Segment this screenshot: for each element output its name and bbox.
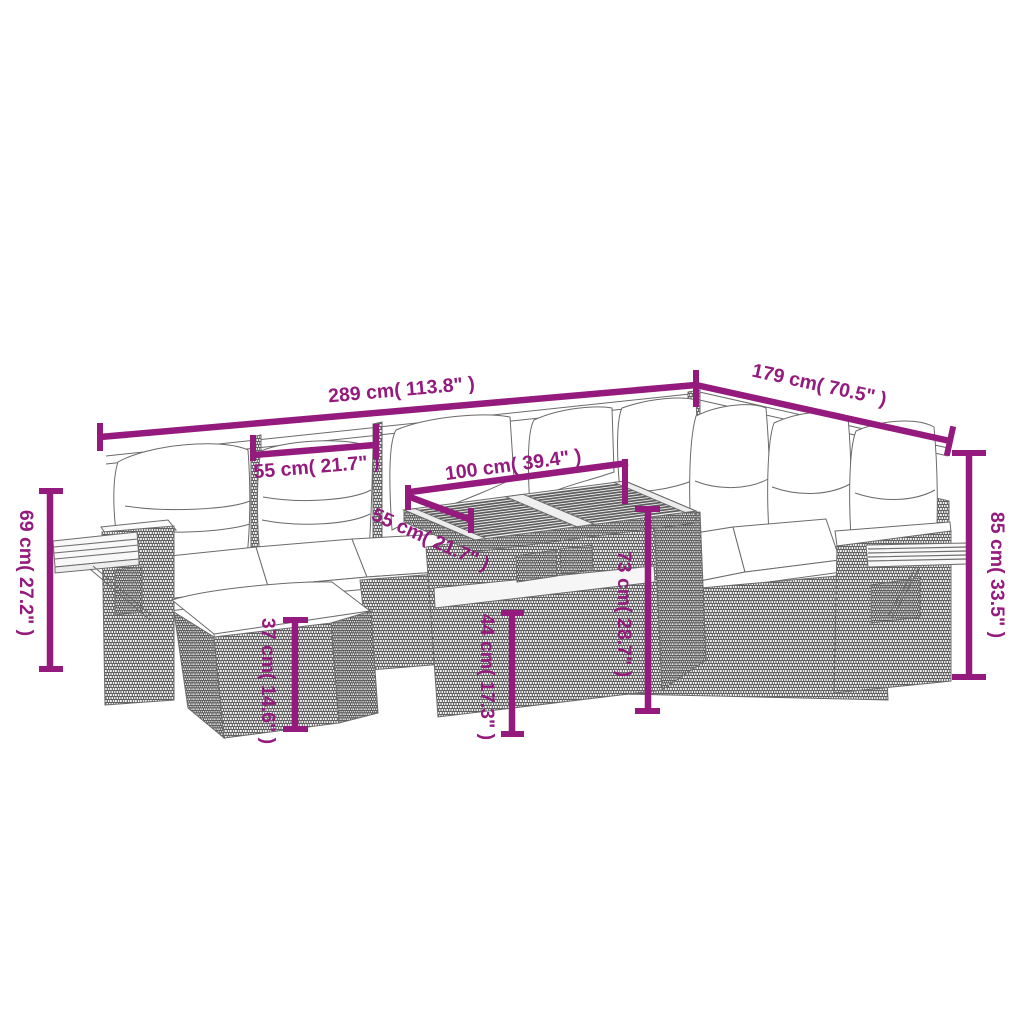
svg-text:44 cm( 17.3" ): 44 cm( 17.3" ) [476,614,498,740]
svg-text:37 cm( 14.6" ): 37 cm( 14.6" ) [257,618,279,744]
svg-text:85 cm( 33.5" ): 85 cm( 33.5" ) [986,512,1008,638]
svg-text:69 cm( 27.2" ): 69 cm( 27.2" ) [15,510,37,636]
svg-text:73 cm( 28.7" ): 73 cm( 28.7" ) [613,551,635,677]
